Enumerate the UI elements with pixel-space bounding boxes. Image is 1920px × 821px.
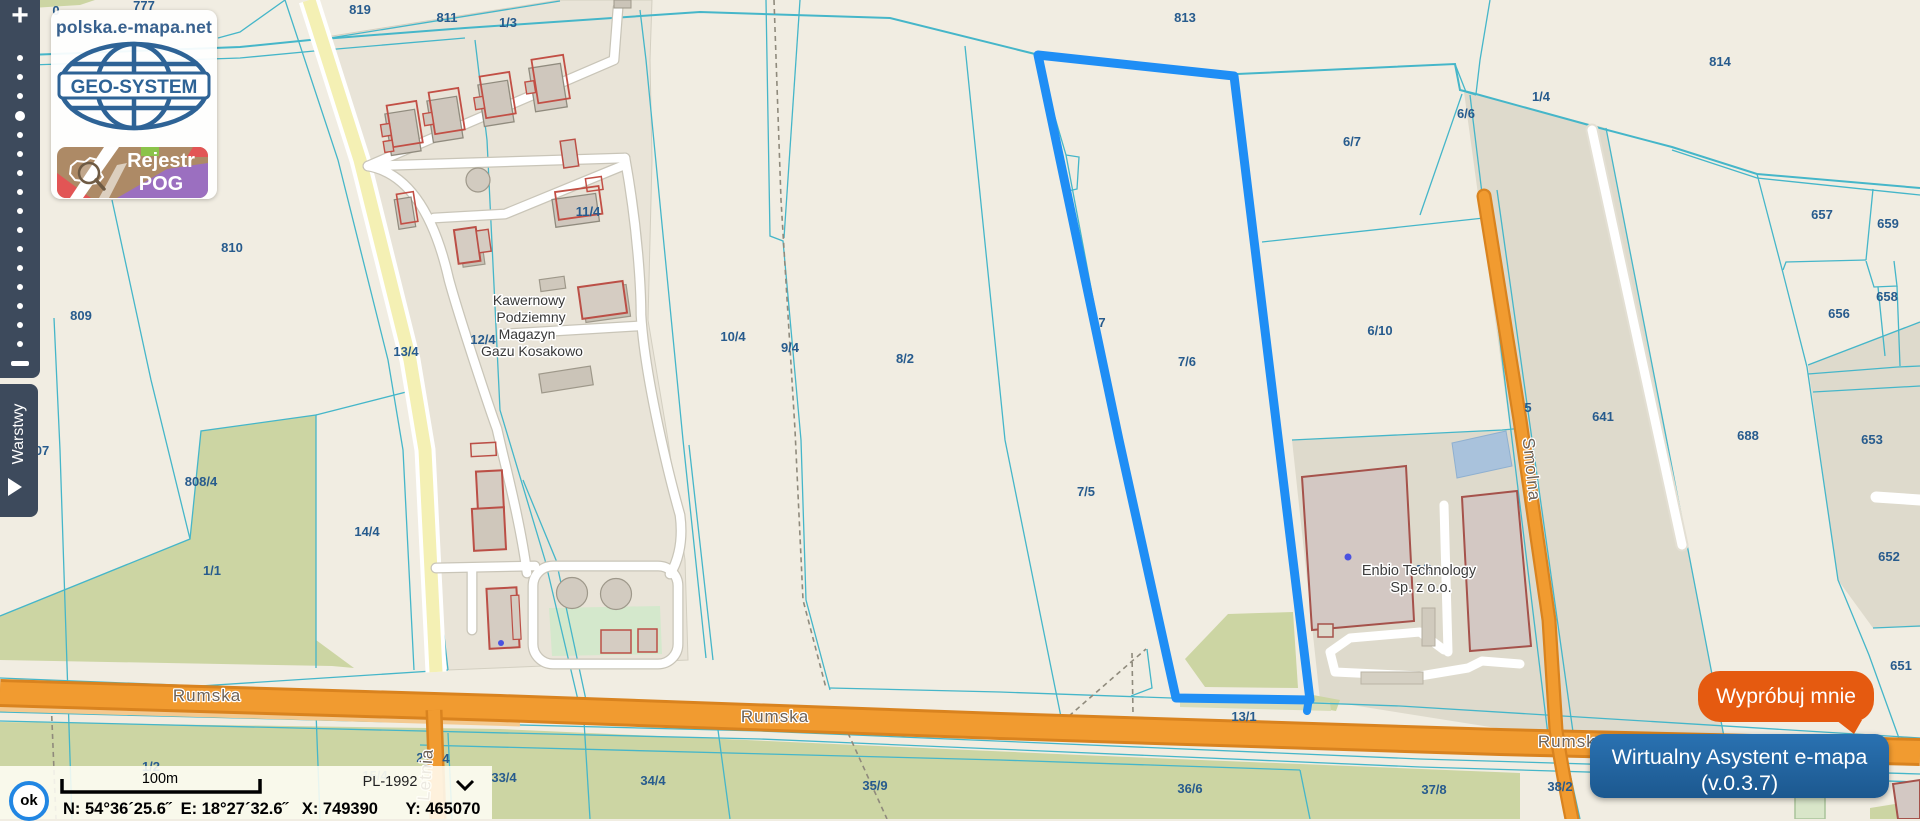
svg-text:810: 810 (221, 240, 243, 255)
svg-text:Rejestr: Rejestr (127, 150, 195, 172)
svg-text:38/2: 38/2 (1547, 779, 1572, 794)
svg-text:652: 652 (1878, 549, 1900, 564)
svg-text:688: 688 (1737, 428, 1759, 443)
svg-text:Rumska: Rumska (741, 707, 809, 726)
svg-text:11/4: 11/4 (576, 204, 601, 219)
svg-text:37/8: 37/8 (1421, 782, 1446, 797)
svg-text:7/5: 7/5 (1077, 484, 1095, 499)
svg-text:656: 656 (1828, 306, 1850, 321)
svg-text:641: 641 (1592, 409, 1614, 424)
svg-text:10/4: 10/4 (720, 329, 746, 344)
svg-text:1/3: 1/3 (499, 15, 517, 30)
svg-text:9/4: 9/4 (781, 340, 800, 355)
svg-text:6/10: 6/10 (1367, 323, 1392, 338)
svg-text:6/6: 6/6 (1457, 106, 1475, 121)
svg-text:813: 813 (1174, 10, 1196, 25)
svg-text:Podziemny: Podziemny (496, 309, 565, 325)
svg-text:809: 809 (70, 308, 92, 323)
svg-text:5: 5 (1524, 400, 1531, 415)
svg-text:808/4: 808/4 (185, 474, 218, 489)
svg-text:659: 659 (1877, 216, 1899, 231)
svg-text:1/4: 1/4 (1532, 89, 1551, 104)
svg-text:34/4: 34/4 (640, 773, 666, 788)
svg-text:13/4: 13/4 (393, 344, 419, 359)
svg-text:35/9: 35/9 (862, 778, 887, 793)
svg-text:7: 7 (1098, 315, 1105, 330)
svg-text:Gazu Kosakowo: Gazu Kosakowo (481, 343, 583, 359)
svg-text:Magazyn: Magazyn (499, 326, 556, 342)
svg-text:6/7: 6/7 (1343, 134, 1361, 149)
svg-text:14/4: 14/4 (354, 524, 380, 539)
svg-text:GEO-SYSTEM: GEO-SYSTEM (71, 77, 198, 98)
svg-text:13/1: 13/1 (1231, 709, 1256, 724)
svg-text:7/6: 7/6 (1178, 354, 1196, 369)
svg-text:819: 819 (349, 2, 371, 17)
svg-text:658: 658 (1876, 289, 1898, 304)
svg-text:Enbio Technology: Enbio Technology (1362, 563, 1477, 579)
svg-text:Sp. z o.o.: Sp. z o.o. (1390, 580, 1451, 596)
svg-text:8/2: 8/2 (896, 351, 914, 366)
svg-text:1/1: 1/1 (203, 563, 221, 578)
svg-text:36/6: 36/6 (1177, 781, 1202, 796)
svg-text:Rumska: Rumska (173, 686, 241, 705)
svg-text:33/4: 33/4 (491, 770, 517, 785)
svg-text:POG: POG (139, 173, 183, 195)
svg-text:653: 653 (1861, 432, 1883, 447)
svg-text:657: 657 (1811, 207, 1833, 222)
svg-text:Kawernowy: Kawernowy (493, 292, 565, 308)
svg-text:814: 814 (1709, 54, 1731, 69)
svg-text:811: 811 (437, 10, 458, 25)
svg-text:651: 651 (1890, 658, 1912, 673)
svg-text:4: 4 (442, 751, 450, 766)
